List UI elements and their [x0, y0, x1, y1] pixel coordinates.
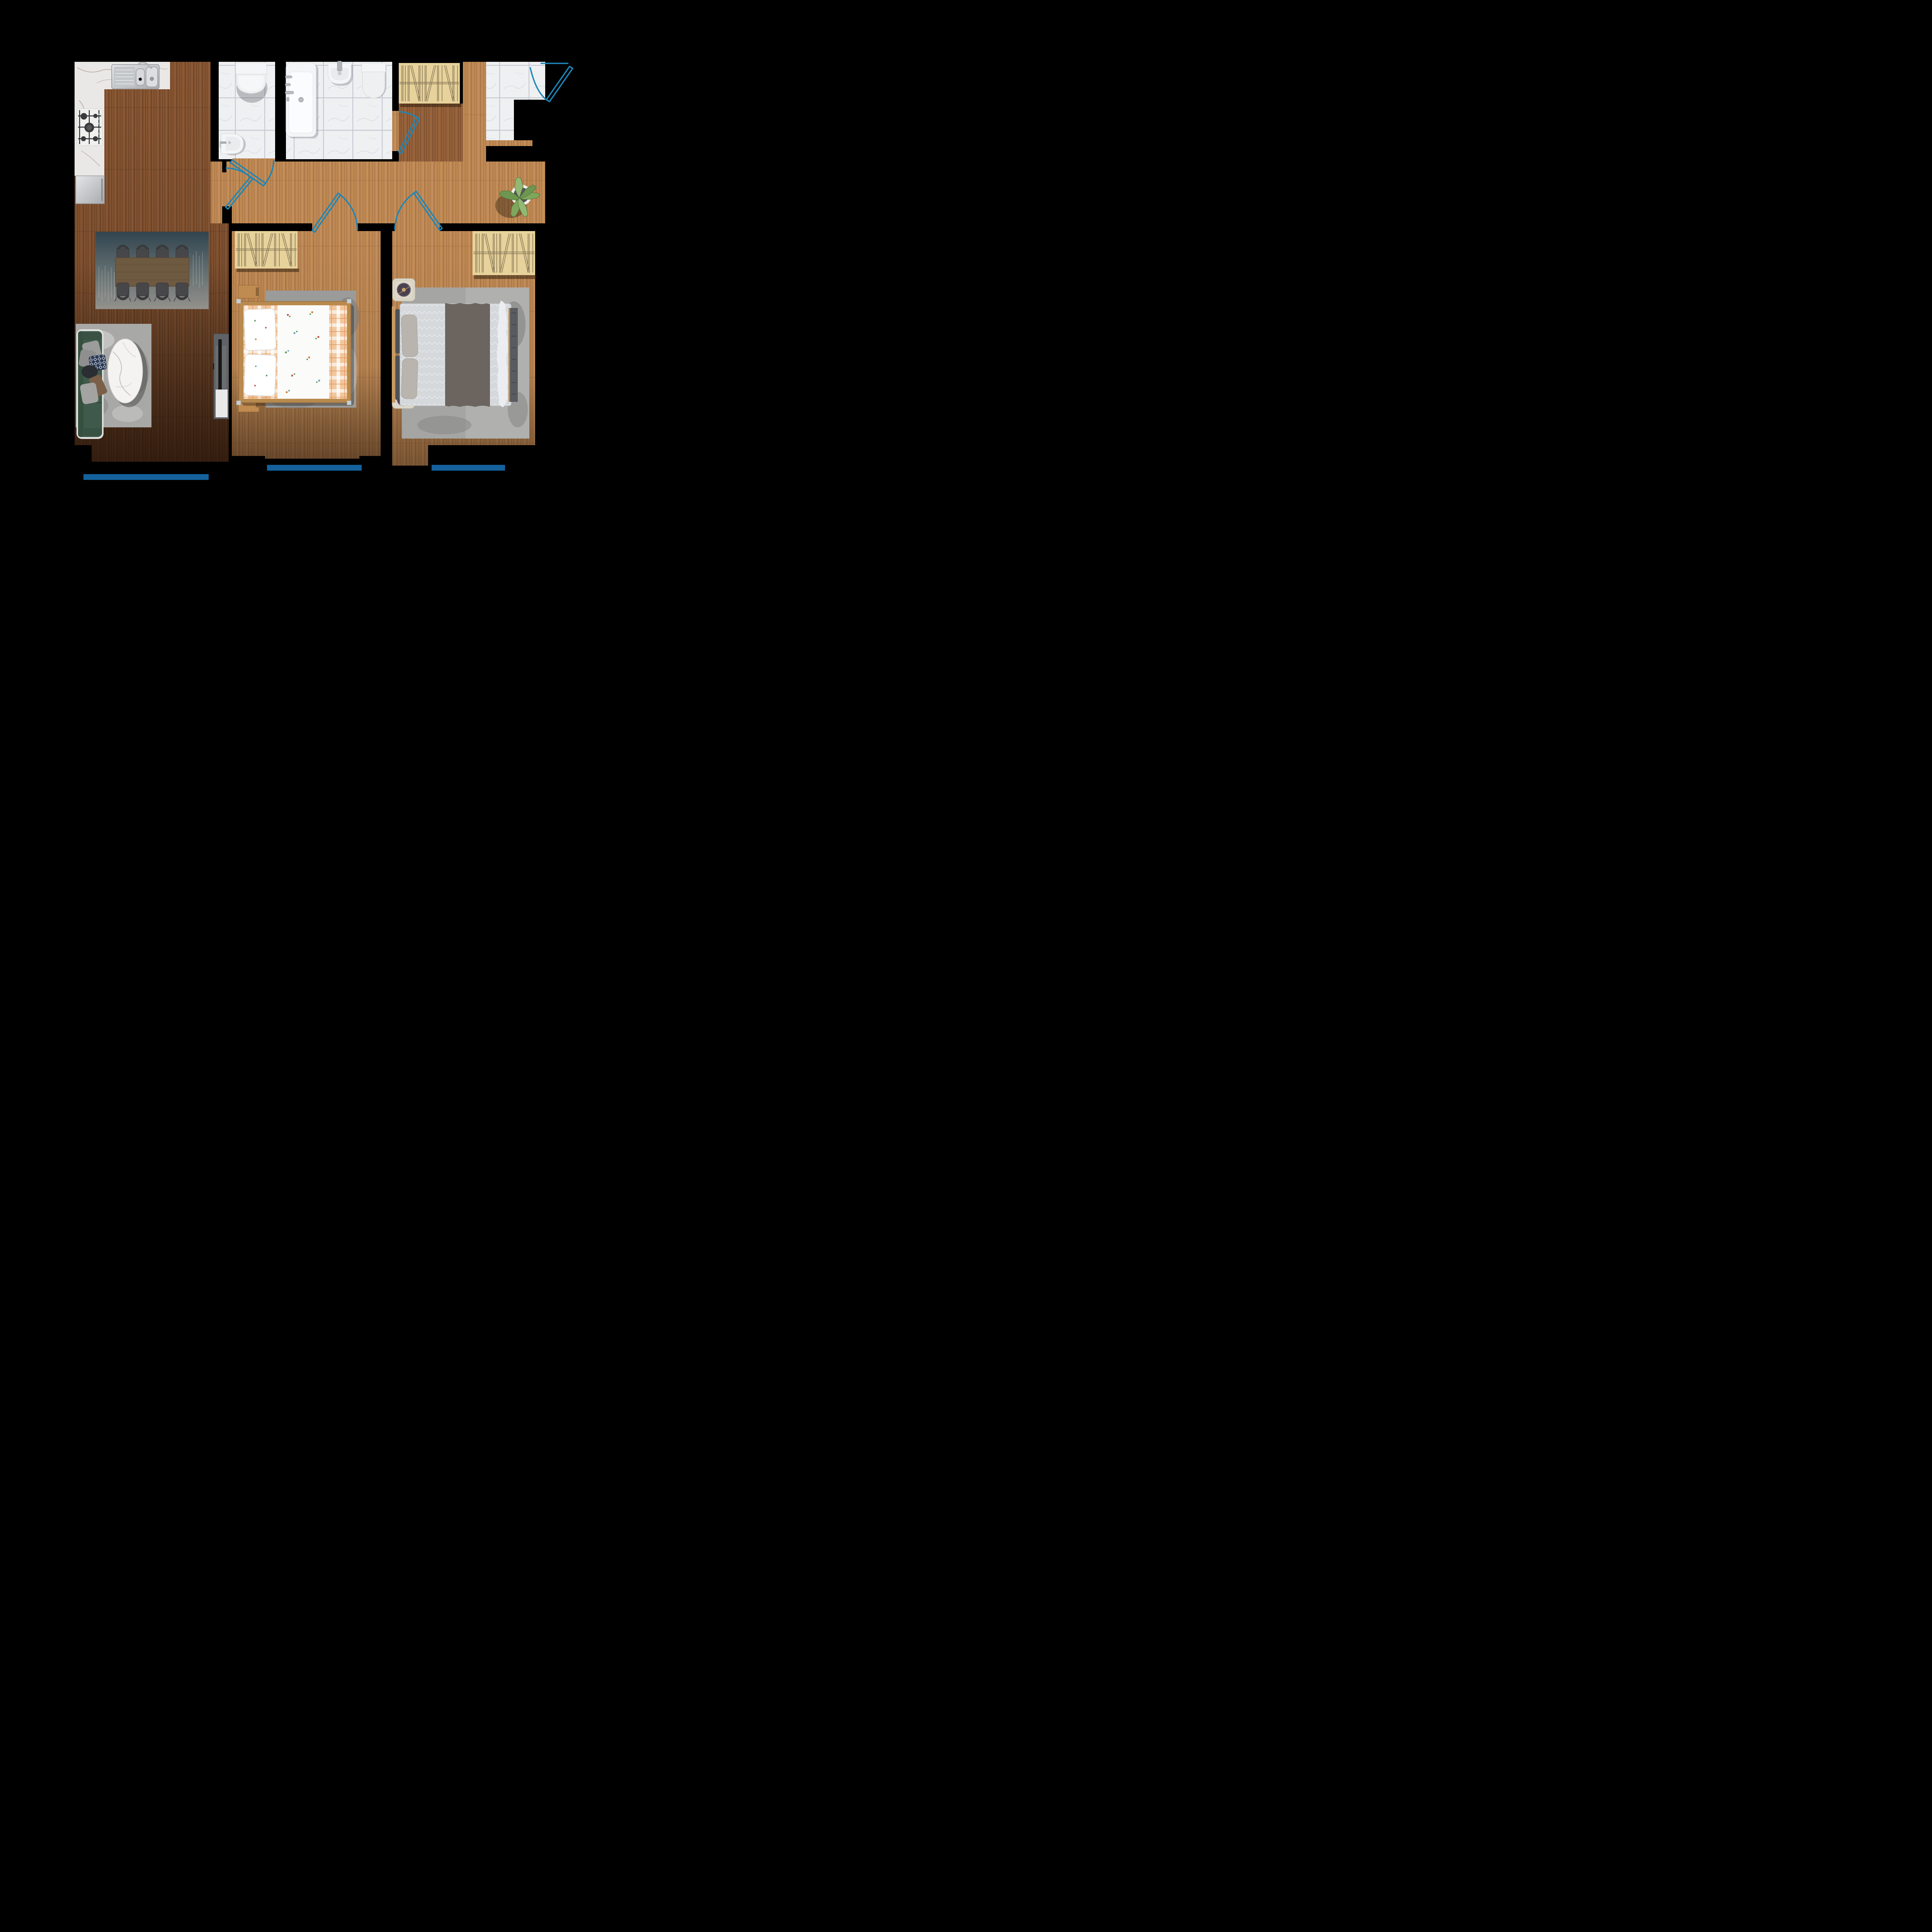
bed-2-frame-strip — [392, 306, 395, 403]
balcony-marker — [267, 465, 362, 471]
coffee-table — [108, 339, 143, 403]
bedroom-1-nightstand-top — [238, 285, 259, 298]
bedroom-2 — [392, 279, 529, 439]
bathroom-basin — [328, 61, 353, 86]
bed-2-headboard-cushion — [395, 355, 400, 400]
bedroom-2-nightstand-top — [393, 279, 415, 301]
kitchen-appliance — [76, 176, 104, 204]
sofa — [77, 329, 108, 439]
balcony-marker — [432, 465, 505, 471]
bed-1 — [236, 299, 354, 406]
bathroom-doorway-threshold — [392, 111, 399, 151]
kitchen-sink — [112, 63, 159, 89]
wc-doorway-threshold — [232, 158, 275, 162]
hallway-floor — [211, 162, 545, 223]
bed-2-pillow — [401, 315, 418, 357]
basin-faucet — [337, 61, 342, 71]
sink-bowl-small — [136, 69, 145, 85]
bedroom-2-doorway-threshold — [395, 223, 440, 232]
hallway-floor-north-column — [463, 62, 486, 162]
tv-unit-lower-cabinet — [216, 389, 228, 417]
wardrobe-bedroom-2 — [473, 231, 537, 279]
balcony-marker — [83, 474, 209, 480]
bathroom-toilet — [362, 63, 386, 98]
gas-hob — [77, 109, 102, 146]
bedroom-1-doorway-threshold — [312, 223, 357, 232]
floor-plan-stage — [0, 0, 600, 524]
bathtub-drain — [299, 97, 303, 102]
tv-screen — [218, 339, 222, 393]
bathtub — [285, 63, 318, 138]
wc-toilet — [236, 63, 267, 103]
wc-bidet — [219, 134, 246, 155]
floor-plan-canvas — [0, 0, 600, 524]
burner — [81, 113, 87, 120]
burner — [94, 114, 98, 118]
bed-2-throw-blanket — [445, 303, 490, 407]
entry-floor-tiles — [486, 62, 545, 140]
bed-1-pillow — [244, 354, 276, 396]
bed-1-pillow — [244, 309, 276, 351]
bed-2-footboard-bench — [509, 308, 518, 402]
burner — [93, 136, 98, 141]
bed-2-pillow — [401, 358, 418, 399]
bed-2-headboard-cushion — [395, 309, 400, 354]
balcony-markers — [83, 465, 505, 480]
dining-area — [95, 232, 209, 309]
wall-stub-above-living-door — [222, 162, 226, 172]
bedroom-1 — [236, 285, 359, 412]
tv-unit — [213, 334, 229, 419]
sofa-pillow-gray — [80, 382, 99, 405]
bed-2 — [392, 301, 518, 407]
wardrobe-bedroom-1 — [235, 231, 299, 272]
wardrobe-entry — [399, 63, 461, 107]
burner — [81, 136, 86, 141]
hallway-floor-under-entry-tiles — [486, 140, 532, 146]
